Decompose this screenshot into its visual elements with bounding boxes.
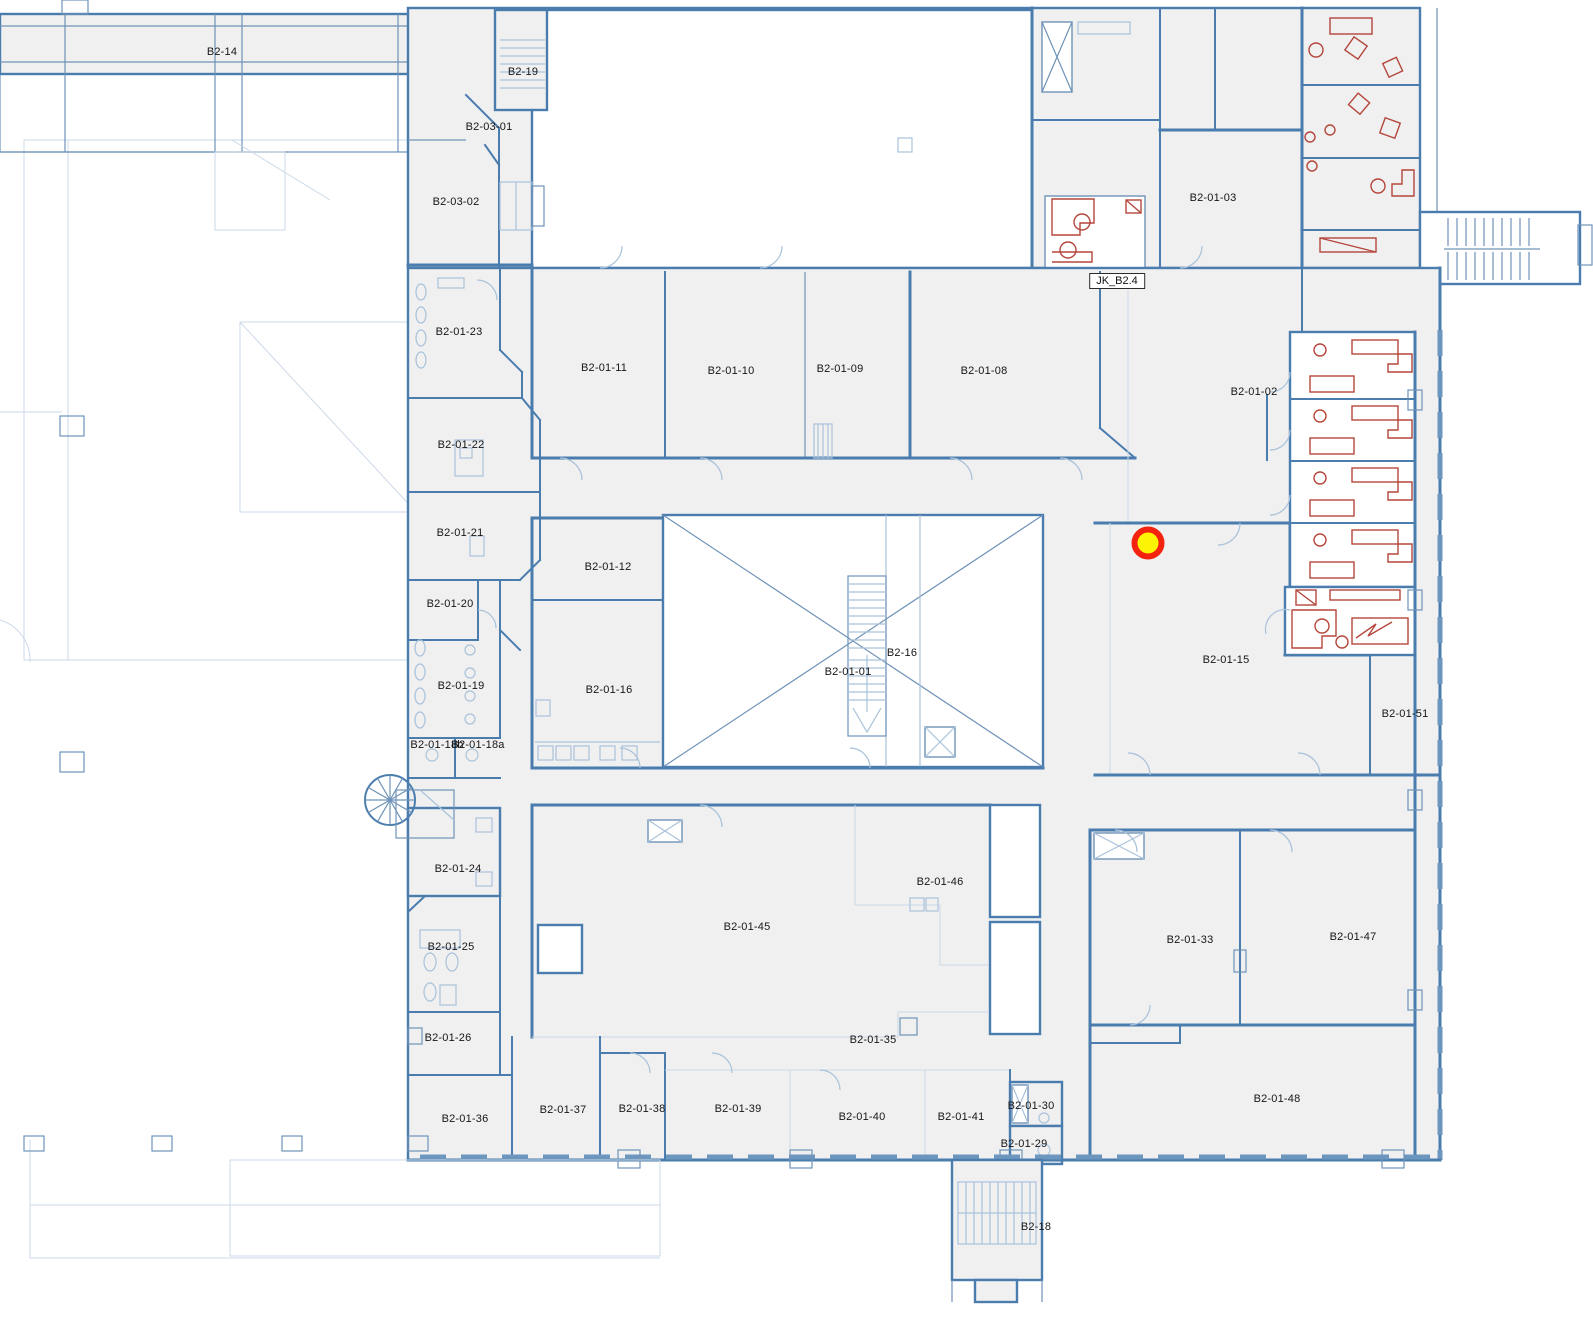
room-label: B2-01-26 [425, 1032, 472, 1044]
room-label: B2-01-46 [917, 876, 964, 888]
room-label: B2-01-38 [619, 1103, 666, 1115]
room-label: B2-01-30 [1008, 1100, 1055, 1112]
room-label: B2-01-51 [1382, 708, 1429, 720]
room-label: B2-03-01 [466, 121, 513, 133]
room-label: B2-01-19 [438, 680, 485, 692]
room-label: B2-01-03 [1190, 192, 1237, 204]
room-label: B2-01-37 [540, 1104, 587, 1116]
room-label: B2-01-45 [724, 921, 771, 933]
room-label: B2-18 [1021, 1221, 1051, 1233]
room-label: B2-01-09 [817, 363, 864, 375]
room-label: B2-01-35 [850, 1034, 897, 1046]
location-marker [1132, 527, 1165, 560]
room-label: B2-01-48 [1254, 1093, 1301, 1105]
room-label: B2-01-15 [1203, 654, 1250, 666]
room-label: B2-01-24 [435, 863, 482, 875]
room-label: B2-01-41 [938, 1111, 985, 1123]
room-label: B2-16 [887, 647, 917, 659]
boxed-label-jk-b24: JK_B2.4 [1089, 273, 1145, 289]
room-label: B2-01-12 [585, 561, 632, 573]
room-label: B2-01-02 [1231, 386, 1278, 398]
room-label: B2-01-18a [451, 739, 504, 751]
room-label: B2-01-40 [839, 1111, 886, 1123]
room-label: B2-03-02 [433, 196, 480, 208]
room-label: B2-01-01 [825, 666, 872, 678]
room-label: B2-01-10 [708, 365, 755, 377]
room-label: B2-01-11 [581, 362, 627, 374]
room-labels-layer: B2-14B2-19B2-03-01B2-03-02B2-01-03B2-01-… [0, 0, 1593, 1317]
room-label: B2-01-33 [1167, 934, 1214, 946]
room-label: B2-01-22 [438, 439, 485, 451]
floor-plan-viewport: B2-14B2-19B2-03-01B2-03-02B2-01-03B2-01-… [0, 0, 1593, 1317]
room-label: B2-19 [508, 66, 538, 78]
room-label: B2-01-23 [436, 326, 483, 338]
room-label: B2-01-36 [442, 1113, 489, 1125]
room-label: B2-01-25 [428, 941, 475, 953]
room-label: B2-01-47 [1330, 931, 1377, 943]
room-label: B2-01-39 [715, 1103, 762, 1115]
room-label: B2-01-21 [437, 527, 484, 539]
room-label: B2-01-16 [586, 684, 633, 696]
room-label: B2-01-20 [427, 598, 474, 610]
room-label: B2-14 [207, 46, 237, 58]
room-label: B2-01-29 [1001, 1138, 1048, 1150]
room-label: B2-01-08 [961, 365, 1008, 377]
